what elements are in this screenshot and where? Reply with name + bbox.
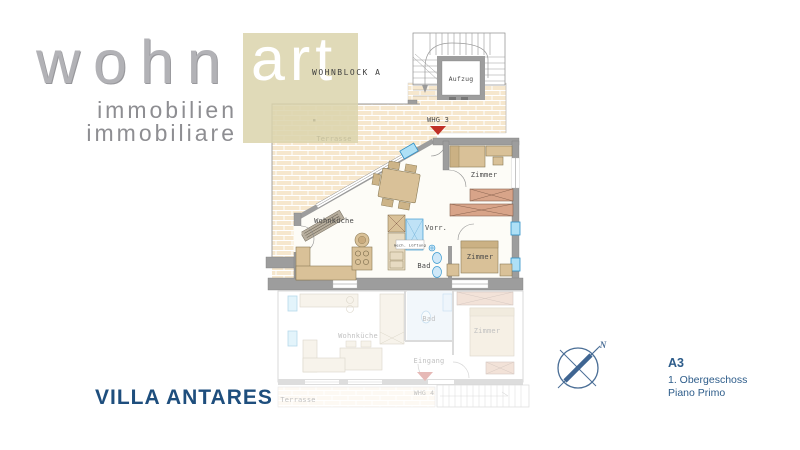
unit-label: WHG 3: [427, 116, 449, 124]
logo-subtitle-1: immobilien: [0, 99, 237, 121]
legend-floor-it: Piano Primo: [668, 387, 747, 400]
room2-label: Zimmer: [467, 253, 494, 261]
logo-accent-square: art: [243, 33, 358, 143]
lower-terrace-label: Terrasse: [280, 396, 315, 404]
compass: N: [558, 340, 607, 388]
elevator-door-left: [449, 97, 456, 100]
logo-accent-word: art: [251, 29, 337, 90]
living-kitchen-label: Wohnküche: [314, 217, 354, 225]
lower-stairs: [437, 385, 529, 407]
ventilation-label: mech. Lüftung: [394, 243, 426, 248]
wall-room1: [443, 141, 449, 170]
lower-entrance-label: Eingang: [414, 357, 445, 365]
lower-bath-label: Bad: [422, 315, 435, 323]
elevator-label: Aufzug: [449, 75, 474, 83]
window-marker-lower-1: [288, 296, 297, 311]
unit-legend: A3 1. Obergeschoss Piano Primo: [668, 356, 747, 399]
lower-floor-plan: Wohnküche Bad Zimmer Eingang WHG 4 Terra…: [278, 291, 529, 407]
legend-floor-de: 1. Obergeschoss: [668, 374, 747, 387]
project-title: VILLA ANTARES: [95, 386, 273, 410]
wall-terrace-corner: [266, 257, 294, 268]
legend-unit: A3: [668, 356, 747, 370]
window-marker-lower-2: [288, 331, 297, 346]
block-label: WOHNBLOCK A: [312, 68, 381, 77]
room1-label: Zimmer: [471, 171, 498, 179]
storage-label: Vorr.: [425, 224, 447, 232]
window-marker-right-1: [511, 222, 520, 235]
lower-unit-label: WHG 4: [414, 389, 435, 397]
page: Aufzug: [0, 0, 800, 450]
north-label: N: [599, 340, 607, 350]
bath-label: Bad: [417, 262, 430, 270]
logo-wordmark: wohn: [36, 32, 234, 93]
elevator-door-right: [461, 97, 468, 100]
logo-subtitle-2: immobiliare: [0, 122, 237, 144]
lower-living-kitchen-label: Wohnküche: [338, 332, 378, 340]
lower-room-label: Zimmer: [474, 327, 501, 335]
window-marker-right-2: [511, 258, 520, 271]
